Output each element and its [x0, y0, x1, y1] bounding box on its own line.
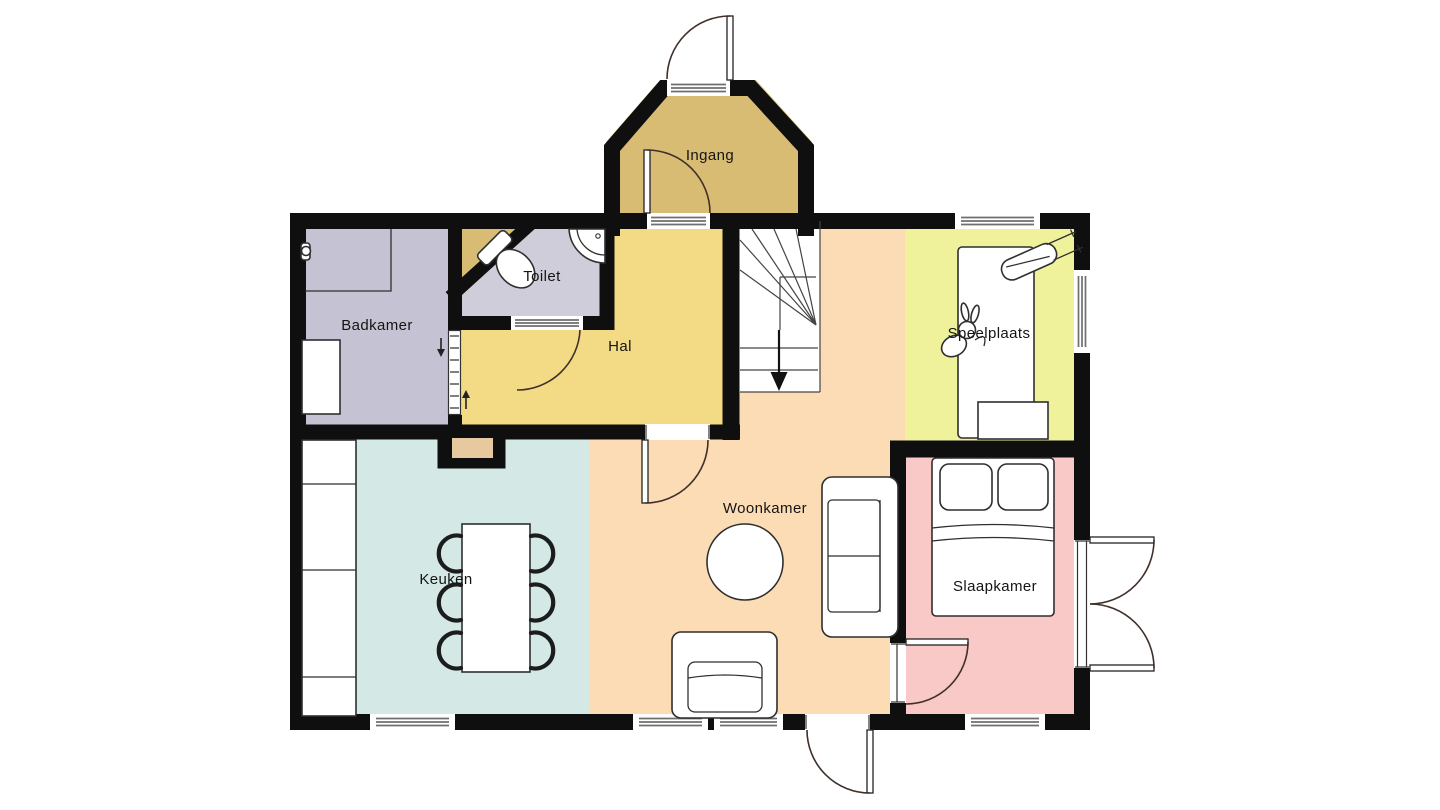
chimney-flue: [452, 438, 493, 458]
label-badkamer: Badkamer: [341, 317, 413, 334]
round-table: [707, 524, 783, 600]
label-woonkamer: Woonkamer: [723, 500, 807, 517]
french-door-upper: [1090, 537, 1154, 604]
opening-slaapkamer-door: [890, 643, 906, 703]
opening-ingang-hal: [647, 213, 710, 229]
opening-toilet: [511, 316, 583, 330]
opening-woonkamer-garden: [805, 714, 870, 730]
floor-plan: Ingang Toilet Badkamer Hal Speelplaats W…: [0, 0, 1440, 810]
pillow: [940, 464, 992, 510]
window-bottom-slaapkamer: [965, 714, 1045, 730]
label-ingang: Ingang: [686, 147, 734, 164]
label-hal: Hal: [608, 338, 632, 355]
room-stairs-floor: [731, 221, 820, 392]
toy-box: [978, 402, 1048, 439]
radiator: [302, 340, 340, 414]
pillow: [998, 464, 1048, 510]
shower-head-icon: [302, 247, 311, 256]
opening-ingang-front: [667, 80, 730, 96]
french-door-lower: [1090, 604, 1154, 671]
label-slaapkamer: Slaapkamer: [953, 578, 1037, 595]
label-toilet: Toilet: [523, 268, 561, 285]
window-right-speelplaats: [1074, 270, 1090, 353]
dining-table: [462, 524, 530, 672]
label-keuken: Keuken: [419, 571, 472, 588]
opening-hal-woonkamer: [645, 424, 710, 440]
garden-door: [807, 730, 873, 793]
front-door: [667, 16, 733, 80]
floor-plan-page: Ingang Toilet Badkamer Hal Speelplaats W…: [0, 0, 1440, 810]
label-speelplaats: Speelplaats: [948, 325, 1031, 342]
sofa: [822, 477, 898, 637]
opening-french-doors: [1074, 540, 1090, 668]
kitchen-counter: [302, 440, 356, 716]
opening-badkamer-sliding: [448, 330, 461, 415]
window-bottom-keuken: [370, 714, 455, 730]
window-top-speelplaats: [955, 213, 1040, 229]
